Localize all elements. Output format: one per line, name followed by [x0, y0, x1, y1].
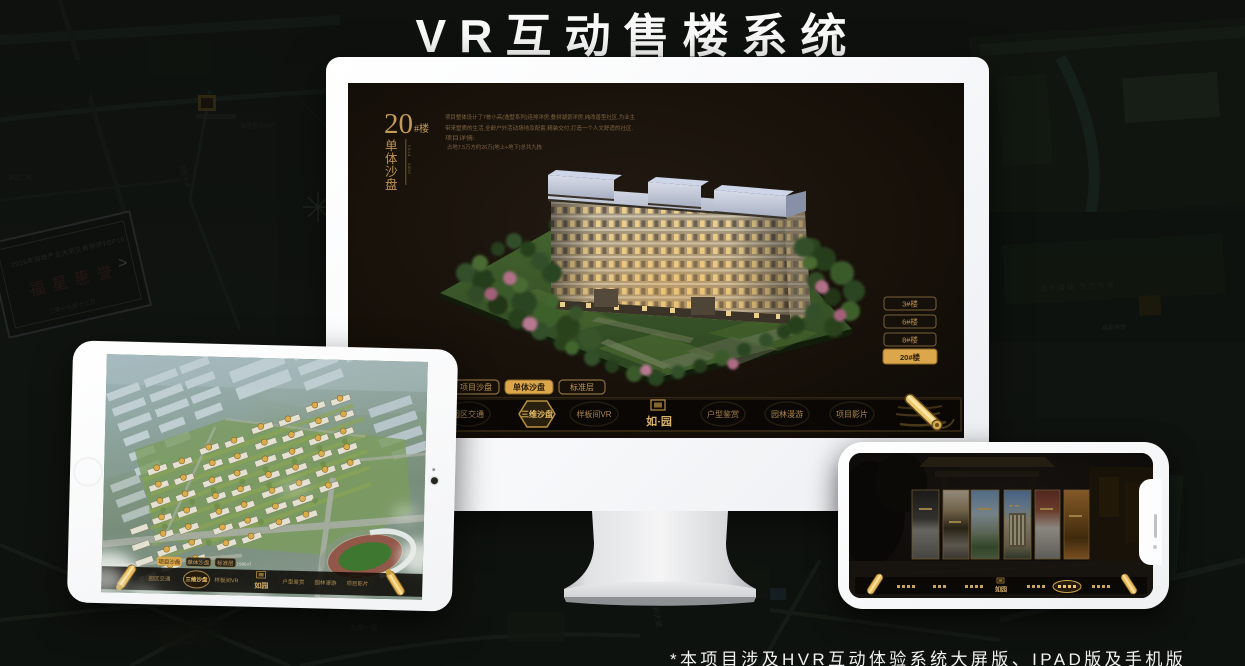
svg-text:6#楼: 6#楼 [902, 317, 918, 327]
svg-text:项目沙盘: 项目沙盘 [460, 382, 492, 392]
svg-text:园区交通: 园区交通 [452, 409, 484, 419]
svg-text:九峰一路: 九峰一路 [350, 623, 378, 632]
svg-text:VILLA: VILLA [407, 145, 411, 157]
svg-text:三维沙盘: 三维沙盘 [521, 409, 553, 419]
svg-text:3#楼: 3#楼 [902, 299, 918, 309]
svg-text:项目详情:: 项目详情: [445, 134, 475, 142]
svg-text:如·园: 如·园 [646, 414, 672, 428]
svg-text:8#楼: 8#楼 [902, 335, 918, 345]
svg-text:项目影片: 项目影片 [836, 409, 868, 419]
svg-text:沙: 沙 [385, 165, 398, 179]
svg-text:单体沙盘: 单体沙盘 [513, 382, 545, 392]
svg-text:#楼: #楼 [414, 122, 429, 135]
svg-text:体: 体 [385, 152, 398, 166]
svg-text:项目整体设计了7栋小高(逸墅系列)连排洋房,叠拼湖景洋房,纯: 项目整体设计了7栋小高(逸墅系列)连排洋房,叠拼湖景洋房,纯改善型社区,为业主 [445, 113, 636, 121]
svg-text:园林漫游: 园林漫游 [771, 409, 803, 419]
svg-text:如园: 如园 [254, 581, 268, 590]
svg-text:标准层: 标准层 [570, 382, 594, 392]
svg-text:户型鉴赏: 户型鉴赏 [707, 409, 739, 419]
svg-text:如园: 如园 [995, 586, 1007, 594]
svg-text:单: 单 [385, 139, 398, 153]
svg-text:占地7.5万方约26万(地上+地下)总共九栋: 占地7.5万方约26万(地上+地下)总共九栋 [447, 143, 543, 151]
svg-text:20: 20 [384, 108, 413, 140]
svg-text:20#楼: 20#楼 [900, 352, 921, 362]
svg-text:SAND: SAND [407, 163, 411, 174]
svg-text:带来墅质的生活,全龄户外活动场地及配套,精装交付,打造一个人: 带来墅质的生活,全龄户外活动场地及配套,精装交付,打造一个人文舒适的社区. [445, 124, 633, 132]
svg-text:盘: 盘 [385, 177, 398, 192]
svg-text:>: > [118, 255, 127, 272]
svg-text:样板间VR: 样板间VR [576, 409, 611, 419]
svg-text:1986㎡: 1986㎡ [237, 560, 252, 566]
svg-text:福星惠誉地产: 福星惠誉地产 [240, 122, 276, 130]
svg-text:建设二路: 建设二路 [8, 174, 32, 182]
